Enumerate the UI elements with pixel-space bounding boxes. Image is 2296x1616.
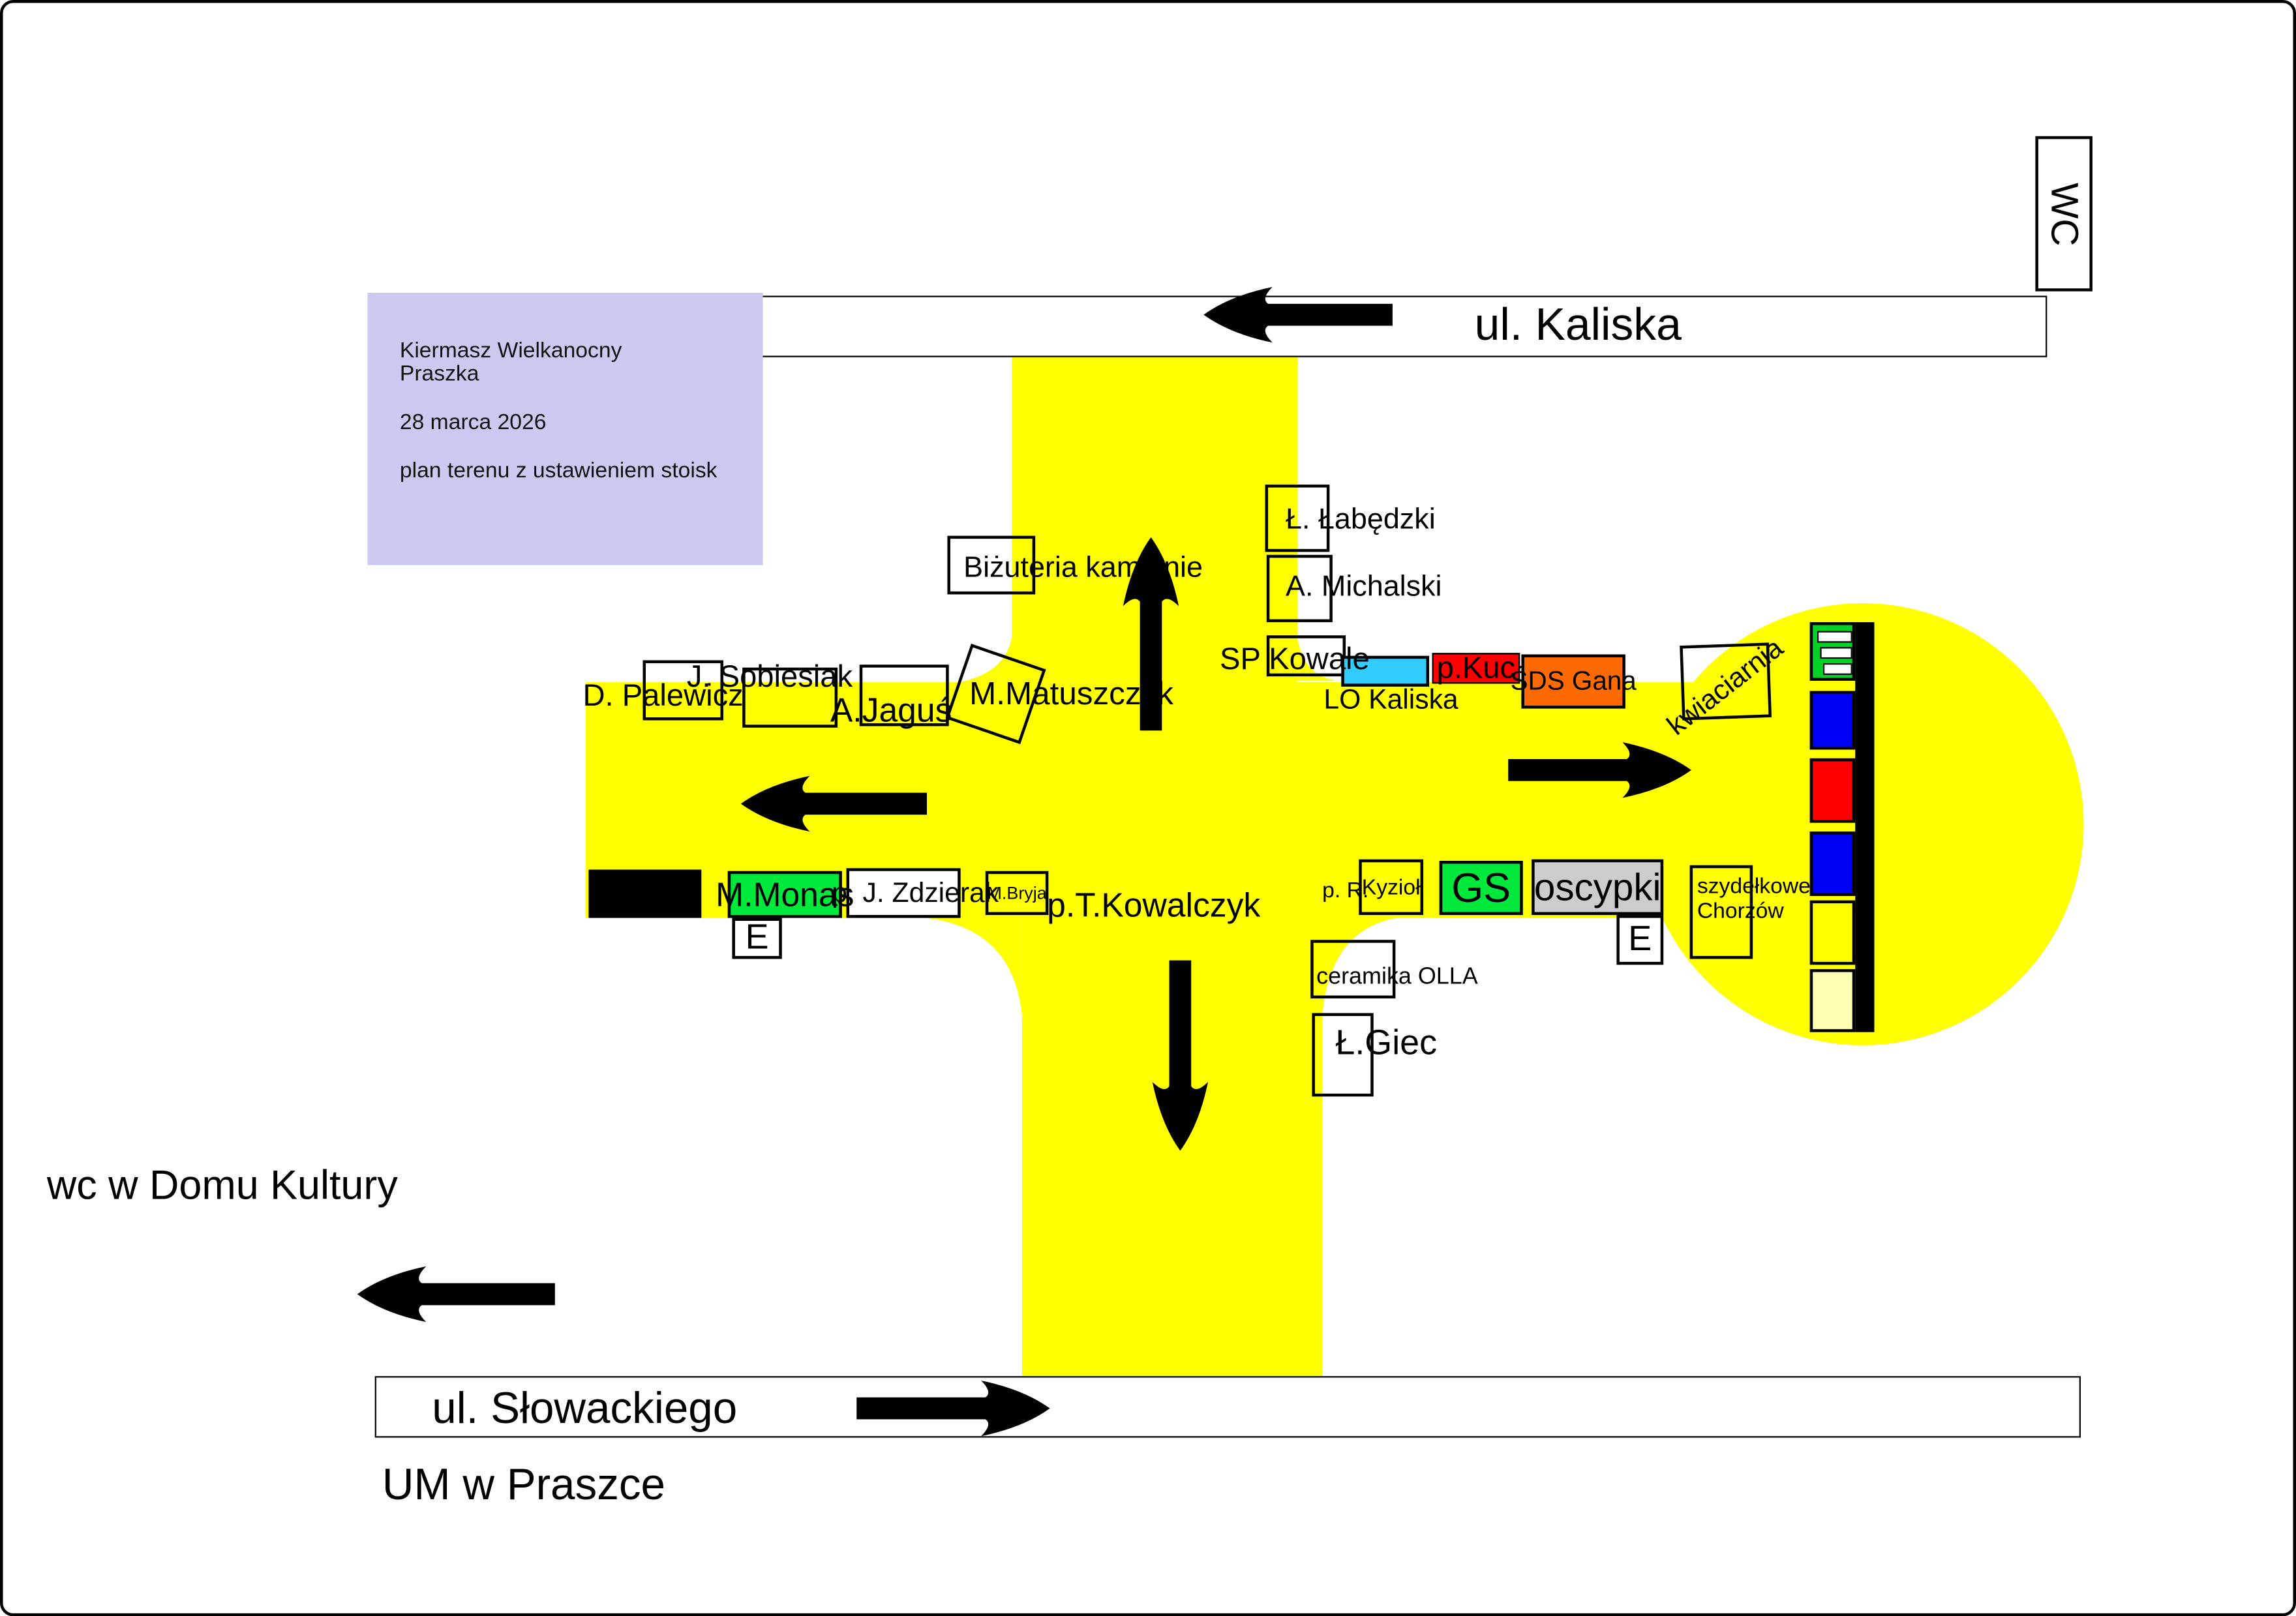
stall-label-sp-kowale: SP Kowale: [1220, 644, 1370, 678]
zone-fillet-sw: [926, 918, 1022, 1016]
stall-label-matuszczyk: M.Matuszczyk: [969, 676, 1173, 711]
town-hall-label: UM w Praszce: [382, 1463, 665, 1510]
stall-label-ceramika: ceramika OLLA: [1316, 965, 1478, 990]
arrow-west-dom-kultury-icon: [357, 1266, 555, 1322]
street-bar-kaliska: [753, 295, 2047, 357]
stall-label-szydelkowe: szydełkoweChorzów: [1697, 874, 1811, 923]
stall-label-zdzierak: p. J. Zdzierak: [832, 880, 999, 910]
info-title-line1: Kiermasz Wielkanocny: [400, 340, 748, 363]
stall-label-kwiaciarnia: kwiaciarnia: [1637, 614, 1817, 764]
stall-label-kowalczyk: p.T.Kowalczyk: [1047, 887, 1260, 923]
stack-green-stripe-1: [1817, 631, 1852, 643]
stall-label-e-right: E: [1628, 920, 1652, 961]
stall-label-sobiesiak: J. Sobiesiak: [687, 662, 853, 695]
zone-north-arm: [1012, 357, 1297, 691]
info-box: Kiermasz Wielkanocny Praszka 28 marca 20…: [367, 293, 763, 565]
stack-green-stripe-3: [1823, 663, 1852, 675]
wc-booth-label: WC: [2041, 182, 2087, 245]
stall-box-stack-yellow: [1810, 901, 1856, 965]
zone-south-arm: [1022, 910, 1322, 1376]
street-label-kaliska: ul. Kaliska: [1475, 300, 1682, 349]
stall-box-kuc: p.Kuc: [1432, 653, 1520, 683]
site-plan-canvas: ul. Kaliska ul. Słowackiego WC Kiermasz …: [0, 0, 2296, 1616]
stall-box-stack-pale-yellow: [1810, 969, 1856, 1032]
arrow-south-icon: [1153, 961, 1208, 1151]
stall-box-sds-gana: ŚDS Gana: [1521, 654, 1625, 708]
stall-label-gs: GS: [1451, 865, 1511, 912]
stall-label-e-left: E: [746, 918, 769, 959]
stack-green-stripe-2: [1820, 647, 1852, 659]
stall-label-sds-gana: ŚDS Gana: [1511, 666, 1637, 696]
pedestrian-zone-shape: [3, 3, 2296, 1616]
stall-label-kyziol-prefix: p. R.: [1322, 880, 1368, 903]
stall-box-oscypki: oscypki: [1532, 860, 1663, 915]
info-title-line2: Praszka: [400, 363, 748, 387]
stall-label-lo-kaliska: LO Kaliska: [1323, 687, 1458, 717]
stall-label-oscypki: oscypki: [1534, 865, 1661, 910]
stall-box-monas: M.Monas: [728, 871, 842, 918]
stall-label-jagus: A.Jaguś: [830, 693, 952, 729]
stall-box-stack-blue-1: [1810, 691, 1856, 750]
wc-booth: WC: [2035, 136, 2092, 292]
stall-box-e-right: E: [1616, 915, 1663, 965]
stall-label-kuc: p.Kuc: [1437, 651, 1516, 686]
stall-box-stack-blue-2: [1810, 831, 1856, 896]
stall-label-michalski: A. Michalski: [1286, 573, 1442, 604]
stall-box-gs: GS: [1440, 861, 1523, 915]
stall-box-unlabeled-black: [588, 869, 701, 918]
stall-box-e-left: E: [732, 918, 781, 959]
arrow-west-icon: [741, 776, 927, 831]
info-subtitle: plan terenu z ustawieniem stoisk: [400, 460, 748, 483]
stall-label-kyziol: Kyzioł: [1362, 875, 1421, 899]
stall-label-bizuteria: Biżuteria kamienie: [963, 554, 1203, 585]
stall-label-labedzki: Ł. Łabędzki: [1286, 505, 1436, 536]
info-date: 28 marca 2026: [400, 411, 748, 435]
stall-box-stack-red: [1810, 758, 1856, 823]
wc-dom-kultury-label: wc w Domu Kultury: [47, 1164, 398, 1208]
street-label-slowackiego: ul. Słowackiego: [432, 1386, 737, 1434]
stall-box-stack-green: [1810, 622, 1856, 681]
stall-label-giec: Ł.Giec: [1335, 1025, 1437, 1062]
stack-divider-bar: [1855, 622, 1874, 1032]
